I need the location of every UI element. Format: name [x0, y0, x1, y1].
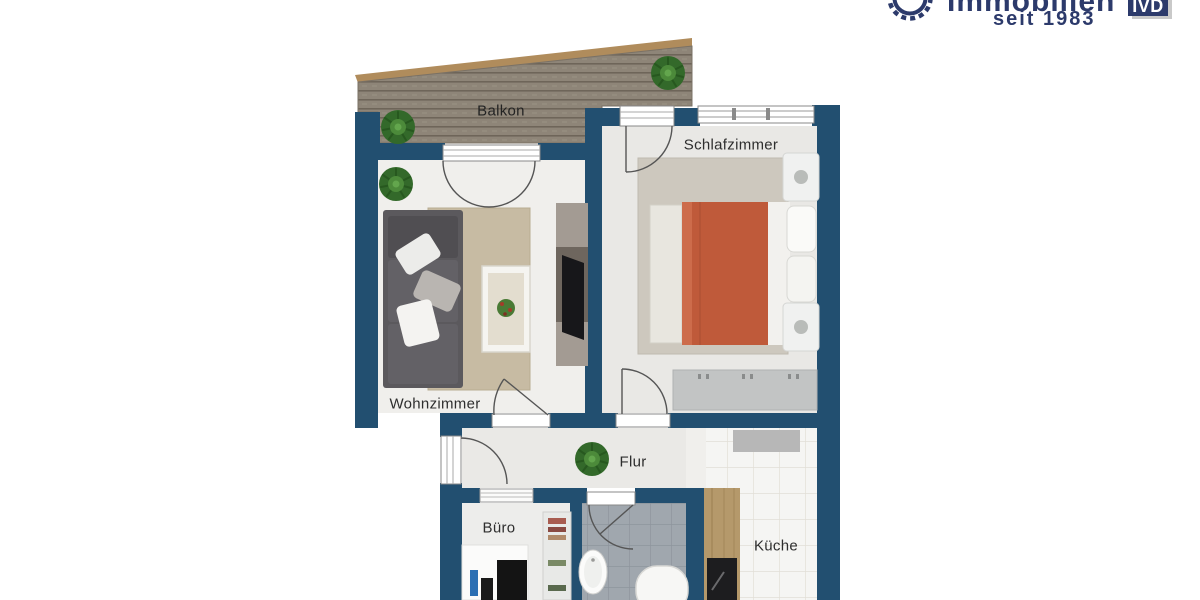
- ivd-badge-text: IVD: [1132, 0, 1164, 15]
- bedroom-window: [698, 106, 814, 123]
- pillow: [787, 256, 816, 302]
- coffee-table: [482, 266, 530, 352]
- sink: [579, 550, 607, 594]
- room-label-wohnzimmer: Wohnzimmer: [389, 396, 480, 413]
- gear-ring-icon: [886, 0, 934, 22]
- floor-plan-page: Balkon Schlafzimmer Wohnzimmer Flur Büro…: [0, 0, 1200, 600]
- floor-plan-drawing: [0, 0, 1200, 600]
- room-label-flur: Flur: [619, 454, 646, 471]
- logo-tagline: seit 1983: [993, 8, 1096, 31]
- room-label-kueche: Küche: [754, 538, 798, 555]
- plant-icon: [651, 56, 685, 90]
- bathtub: [636, 566, 688, 600]
- buero-opening: [480, 489, 533, 502]
- room-label-buero: Büro: [483, 520, 516, 537]
- tv-sideboard: [556, 203, 588, 366]
- pillow: [787, 206, 816, 252]
- room-label-schlafzimmer: Schlafzimmer: [684, 137, 778, 154]
- flur-floor: [462, 428, 686, 488]
- tv-icon: [562, 255, 584, 340]
- desk: [462, 545, 528, 600]
- room-label-balkon: Balkon: [477, 103, 525, 120]
- wardrobe: [673, 370, 817, 410]
- plant-icon: [379, 167, 413, 201]
- shelf: [543, 512, 571, 600]
- stove-icon: [707, 558, 737, 600]
- ivd-badge: IVD: [1128, 0, 1168, 16]
- flur-kitchen-passage: [686, 428, 706, 488]
- plant-icon: [381, 110, 415, 144]
- plant-icon: [575, 442, 609, 476]
- kitchen-upper-counter: [733, 430, 800, 452]
- sofa: [383, 210, 463, 388]
- monitor-icon: [497, 560, 527, 600]
- kitchen-counter: [704, 488, 740, 600]
